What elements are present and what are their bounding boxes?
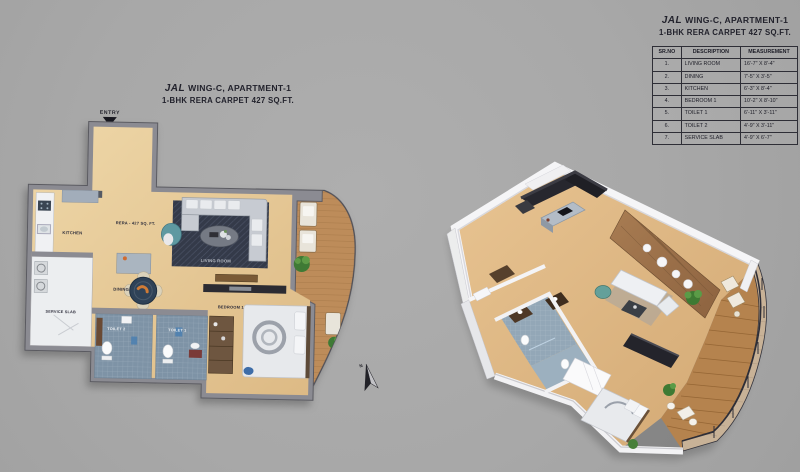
north-arrow-icon: N <box>358 361 378 392</box>
table-row: 3.KITCHEN6'-3" X 8'-4" <box>653 83 798 95</box>
console-bench <box>215 274 257 282</box>
table-row: 1.LIVING ROOM16'-7" X 8'-4" <box>653 59 798 71</box>
table-row: 2.DINING7'-5" X 3'-5" <box>653 71 798 83</box>
plan3d-title: JALWING-C, APARTMENT-1 1-BHK RERA CARPET… <box>650 15 800 37</box>
toilet1-label: TOILET 1 <box>168 328 186 332</box>
wardrobe <box>208 316 233 373</box>
plan3d-subtitle: 1-BHK RERA CARPET 427 SQ.FT. <box>650 28 800 38</box>
kitchen-label: KITCHEN <box>62 230 82 235</box>
table-row: 6.TOILET 24'-9" X 3'-11" <box>653 120 798 132</box>
brand-name: JAL <box>662 15 682 26</box>
measurement-table: SR.NO DESCRIPTION MEASUREMENT 1.LIVING R… <box>652 46 798 145</box>
col-measurement: MEASUREMENT <box>741 47 798 59</box>
service-slab-area: SERVICE SLAB <box>30 251 93 346</box>
col-description: DESCRIPTION <box>681 47 740 59</box>
table-header-row: SR.NO DESCRIPTION MEASUREMENT <box>653 47 798 59</box>
north-label: N <box>359 363 363 369</box>
teal-armchair <box>595 286 611 299</box>
floor-plan-3d <box>425 150 795 472</box>
plan3d-title-text: WING-C, APARTMENT-1 <box>685 15 788 25</box>
living-room-label: LIVING ROOM <box>201 258 232 264</box>
bedroom-label: BEDROOM 1 <box>218 304 245 310</box>
service-slab-label: SERVICE SLAB <box>45 310 76 315</box>
floor-plan-2d: ENTRY <box>5 88 405 418</box>
toilet2-label: TOILET 2 <box>107 327 125 331</box>
table-row: 7.SERVICE SLAB4'-9" X 6'-7" <box>653 133 798 145</box>
dining-table <box>129 277 157 305</box>
table-row: 4.BEDROOM 110'-2" X 8'-10" <box>653 96 798 108</box>
brochure-canvas: JALWING-C, APARTMENT-1 1-BHK RERA CARPET… <box>0 0 800 472</box>
rera-area-label: RERA - 427 SQ. FT. <box>116 220 156 226</box>
toilet1-area: TOILET 1 <box>155 315 207 380</box>
col-srno: SR.NO <box>653 47 682 59</box>
plan3d-title-line1: JALWING-C, APARTMENT-1 <box>650 15 800 28</box>
entry-label: ENTRY <box>100 110 121 116</box>
table-row: 5.TOILET 16'-11" X 3'-11" <box>653 108 798 120</box>
dining-label: DINING <box>113 287 129 292</box>
